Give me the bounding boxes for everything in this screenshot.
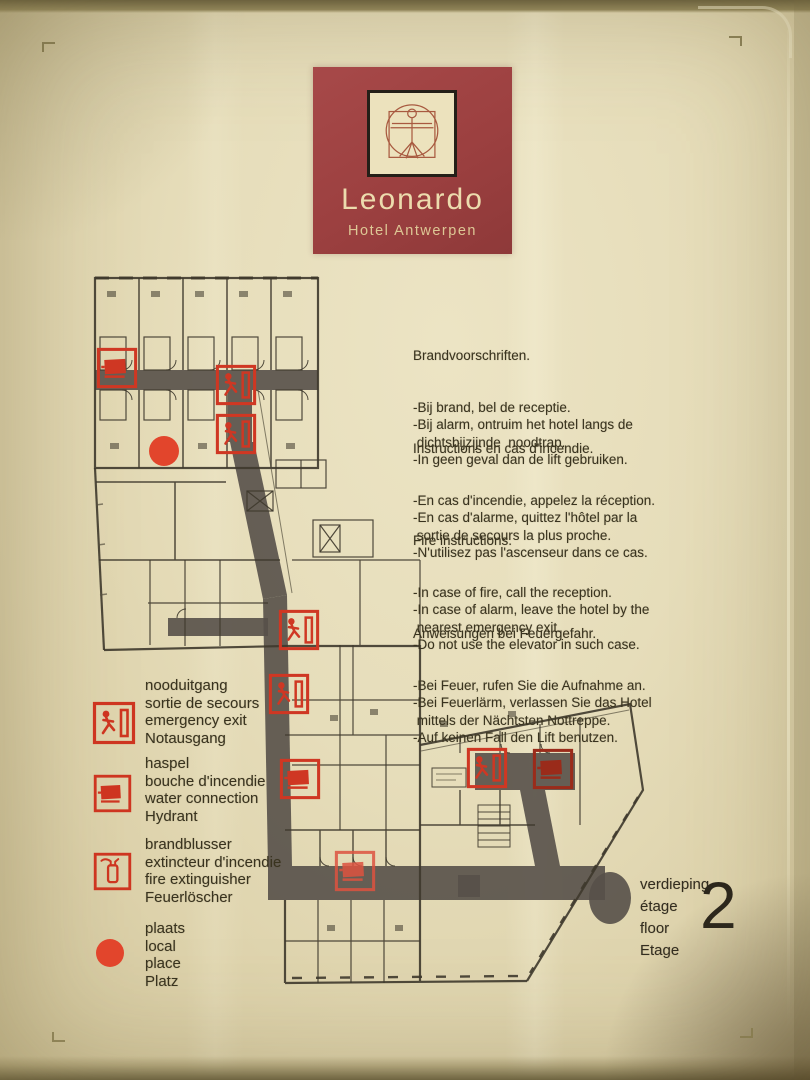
hotel-logo: Leonardo Hotel Antwerpen [313,67,512,254]
plastic-sleeve-corner [698,6,792,58]
corner-mark [42,42,55,52]
floor-number: 2 [700,872,737,938]
corner-mark [740,1028,753,1038]
legend-location-labels: plaats local place Platz [145,920,185,990]
hotel-location: Hotel Antwerpen [313,223,512,239]
instructions-german-body: -Bei Feuer, rufen Sie die Aufnahme an. -… [413,677,673,747]
instructions-dutch-title: Brandvoorschriften. [413,347,673,364]
instructions-german-title: Anweisungen bei Feuergefahr. [413,625,673,642]
vitruvian-man-image [367,90,457,177]
staircase [478,805,510,847]
photo-top-edge [0,0,810,13]
legend-emergency-exit-labels: nooduitgang sortie de secours emergency … [145,677,259,747]
hotel-name: Leonardo [313,183,512,217]
instructions-french-title: Instructions en cas d'incendie. [413,440,673,457]
corner-mark [52,1032,65,1042]
evacuation-plan-sign: Leonardo Hotel Antwerpen [0,0,810,1080]
hose-reel-icon [93,774,132,813]
map-marker-place-circle [149,436,179,466]
corner-mark [729,36,742,46]
location-circle-icon [95,938,125,968]
legend-fire-extinguisher-labels: brandblusser extincteur d'incendie fire … [145,836,281,906]
floor-labels: verdieping étage floor Etage [640,874,709,962]
fire-extinguisher-icon [93,852,132,891]
legend-hose-reel-labels: haspel bouche d'incendie water connectio… [145,755,265,825]
instructions-english-title: Fire instructions. [413,532,673,549]
emergency-exit-icon [92,701,136,745]
instructions-german: Anweisungen bei Feuergefahr. -Bei Feuer,… [413,590,673,781]
